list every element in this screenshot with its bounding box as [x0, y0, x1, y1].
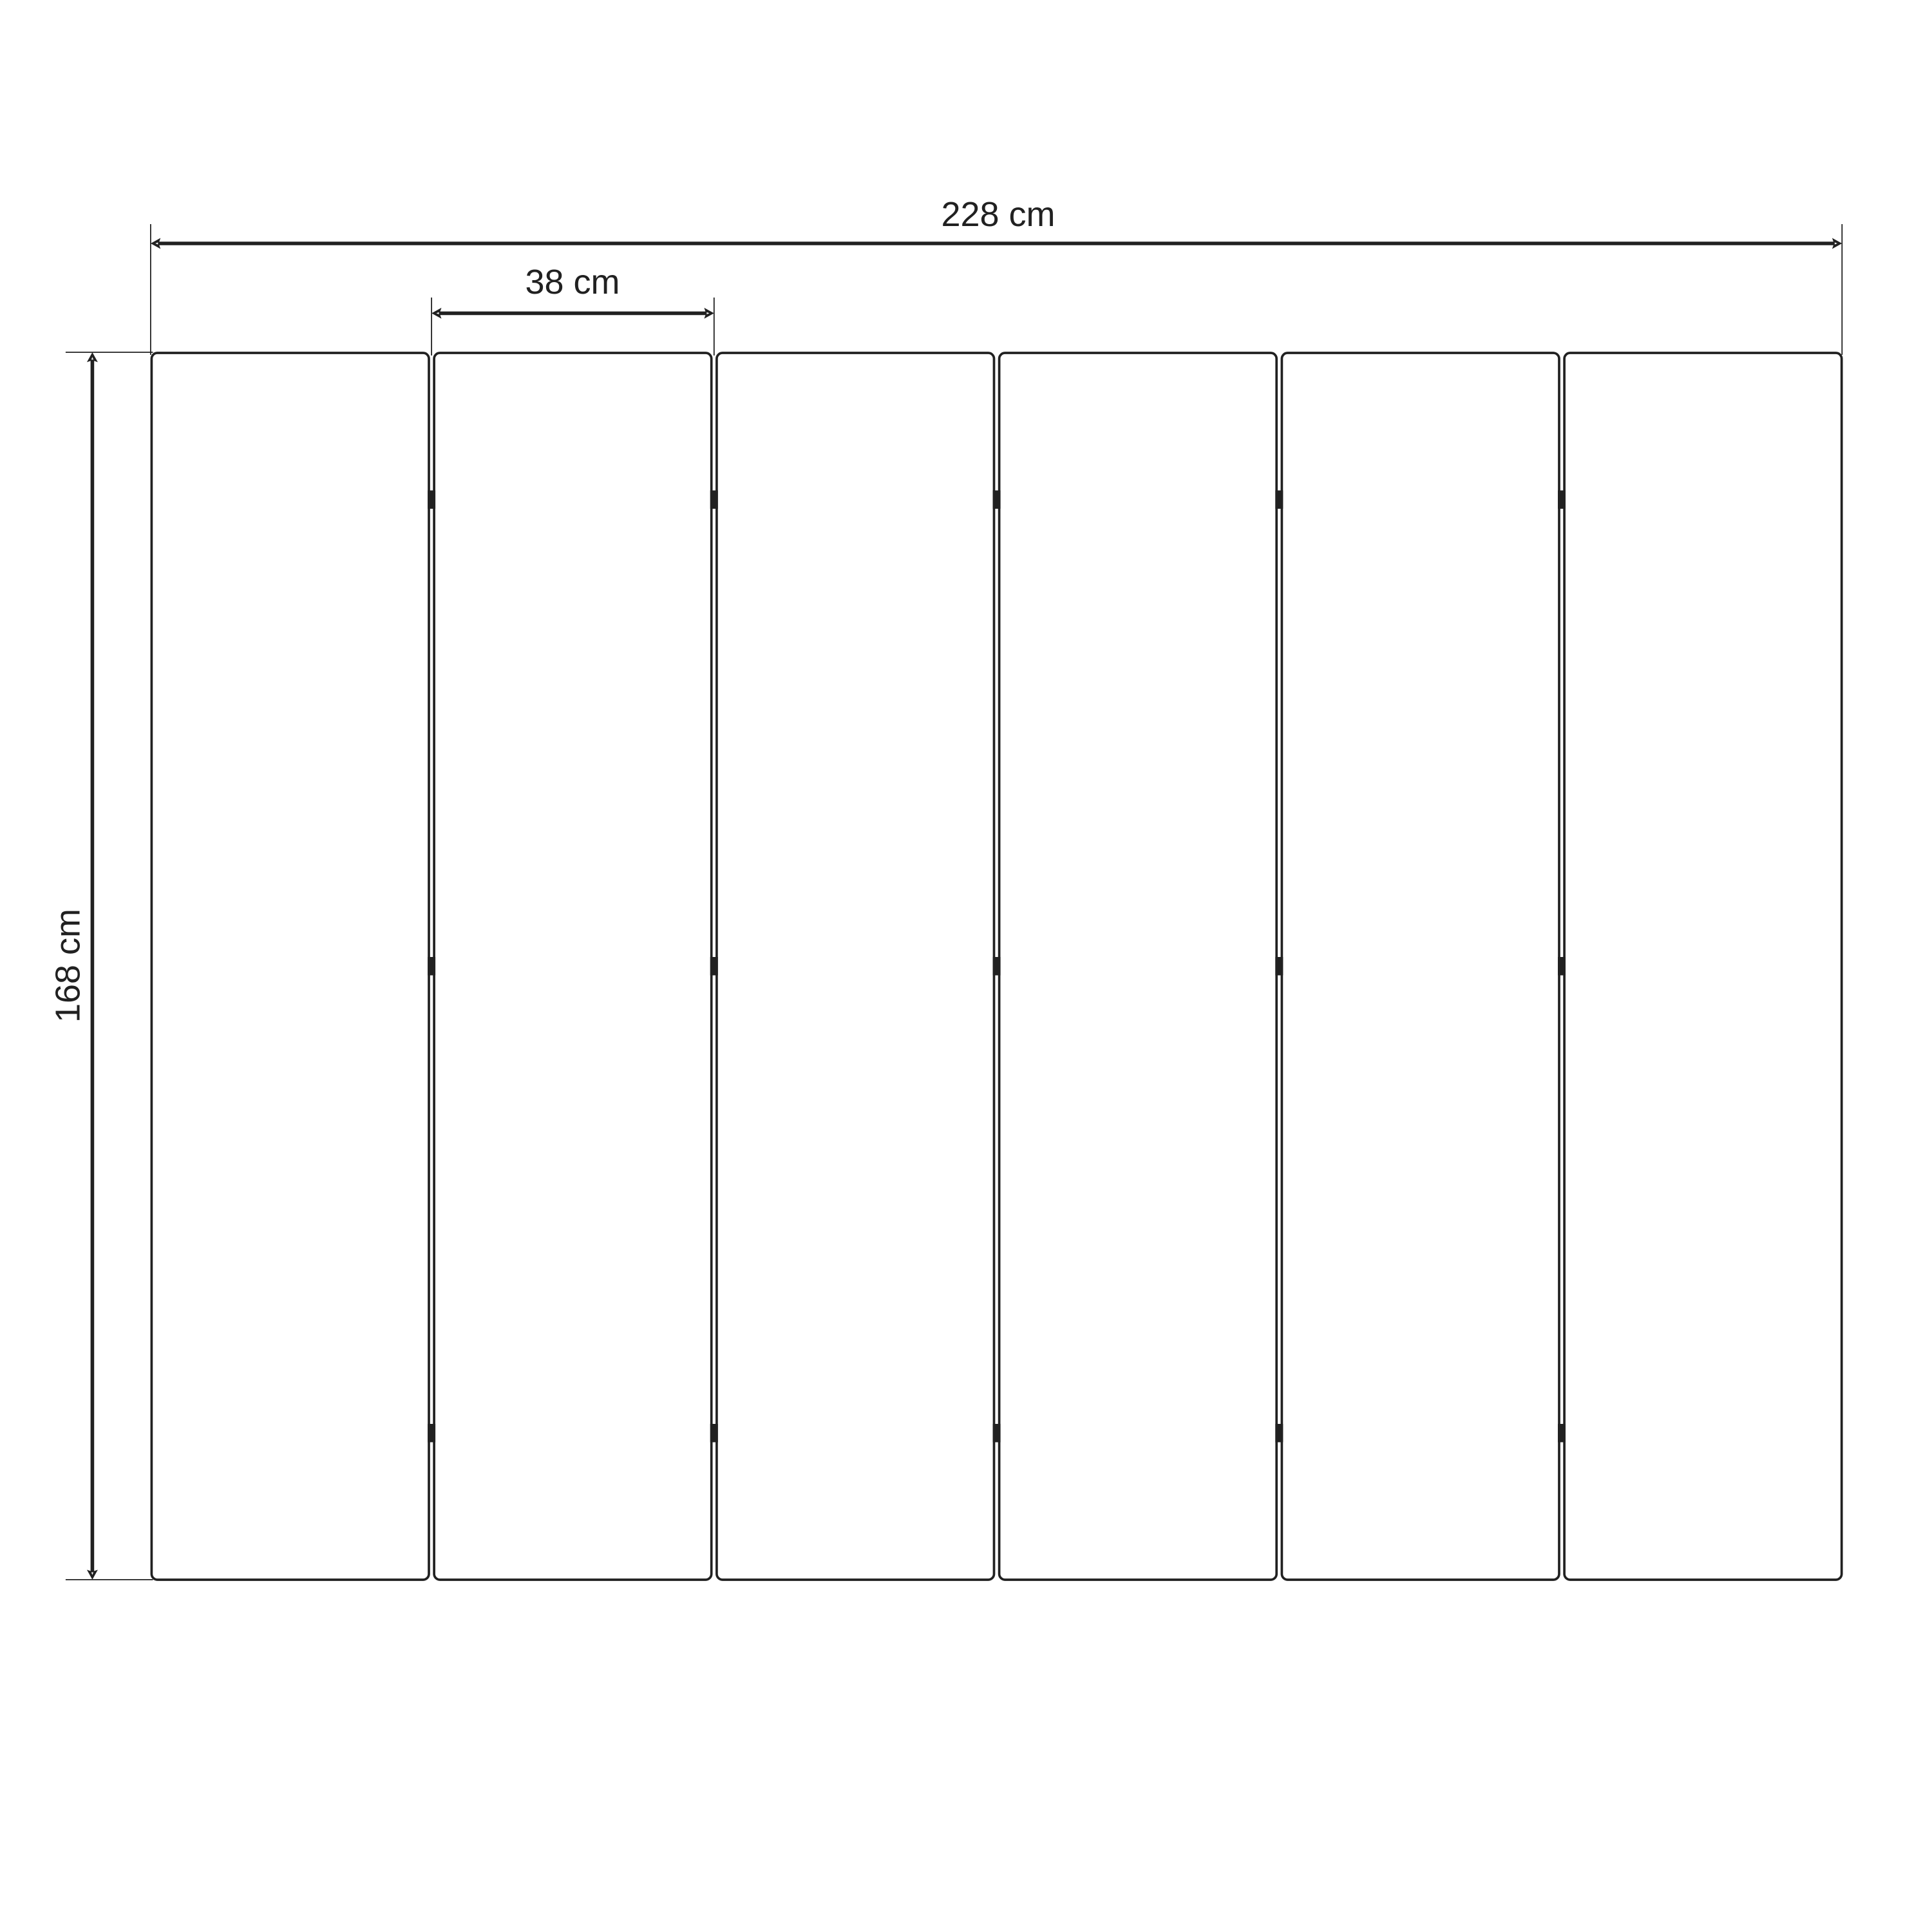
svg-text:228 cm: 228 cm: [941, 195, 1055, 234]
svg-text:38 cm: 38 cm: [525, 263, 620, 301]
svg-text:168 cm: 168 cm: [48, 909, 87, 1023]
